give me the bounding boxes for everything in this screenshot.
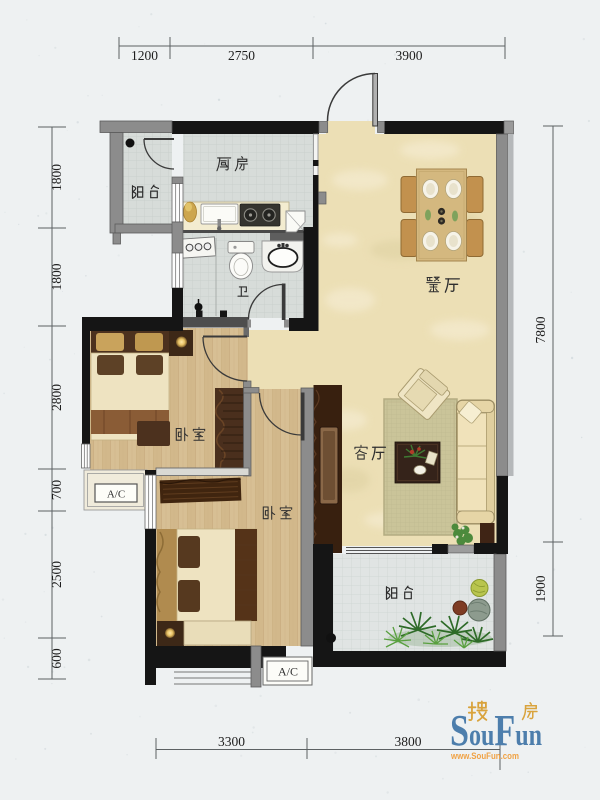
svg-text:700: 700	[49, 480, 64, 501]
svg-text:3800: 3800	[395, 734, 422, 749]
svg-text:A/C: A/C	[107, 489, 125, 501]
svg-text:2750: 2750	[228, 48, 255, 63]
svg-text:2500: 2500	[49, 561, 64, 588]
svg-text:A/C: A/C	[278, 665, 298, 679]
svg-text:1900: 1900	[533, 575, 548, 602]
svg-text:2800: 2800	[49, 384, 64, 411]
svg-text:3300: 3300	[218, 734, 245, 749]
svg-text:3900: 3900	[396, 48, 423, 63]
svg-text:1800: 1800	[49, 263, 64, 290]
svg-text:www.SouFun.com: www.SouFun.com	[450, 751, 519, 762]
svg-text:7800: 7800	[533, 316, 548, 343]
svg-text:600: 600	[49, 648, 64, 669]
svg-text:1800: 1800	[49, 164, 64, 191]
svg-text:1200: 1200	[131, 48, 158, 63]
